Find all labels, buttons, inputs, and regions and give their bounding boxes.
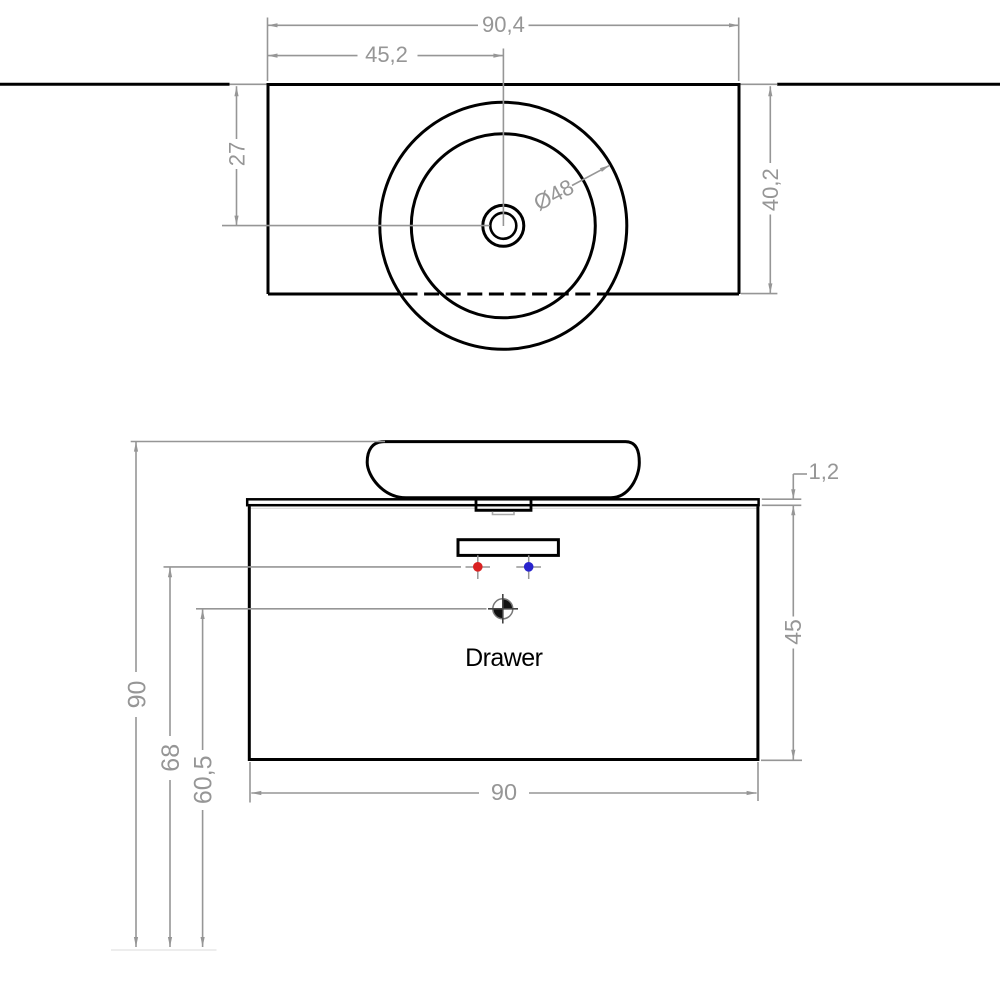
svg-text:Ø48: Ø48 [529,174,577,216]
svg-text:90: 90 [491,779,517,805]
svg-text:1,2: 1,2 [809,459,840,484]
svg-text:45,2: 45,2 [365,42,408,67]
svg-text:Drawer: Drawer [465,644,542,672]
svg-text:90,4: 90,4 [482,12,525,37]
svg-text:60,5: 60,5 [190,755,218,804]
svg-text:40,2: 40,2 [758,168,783,211]
svg-text:90: 90 [124,681,152,709]
svg-text:68: 68 [157,744,185,772]
svg-text:45: 45 [780,619,806,645]
svg-text:27: 27 [224,142,249,166]
